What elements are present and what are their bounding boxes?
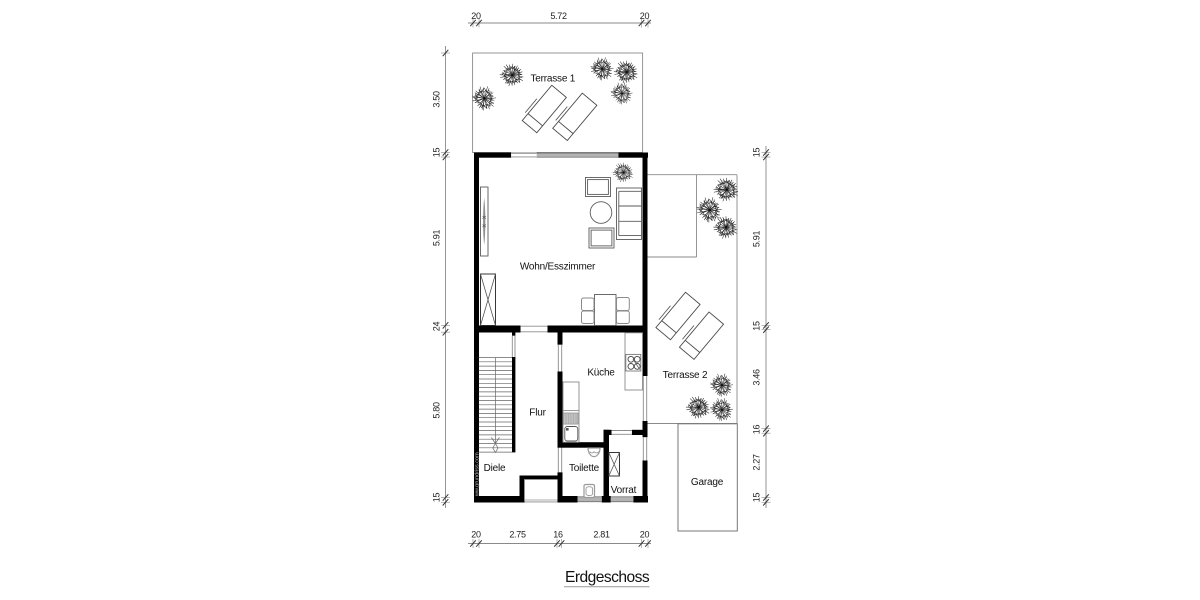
svg-text:15: 15 — [752, 493, 762, 503]
svg-text:5.91: 5.91 — [432, 230, 442, 247]
svg-text:2.81: 2.81 — [593, 530, 610, 540]
svg-text:15: 15 — [432, 493, 442, 503]
svg-text:5.91: 5.91 — [752, 231, 762, 248]
svg-text:Vorrat: Vorrat — [611, 485, 637, 496]
svg-text:2.27: 2.27 — [752, 454, 762, 471]
svg-text:16: 16 — [752, 425, 762, 435]
svg-text:20: 20 — [640, 530, 650, 540]
svg-text:2.75: 2.75 — [509, 530, 526, 540]
svg-text:Erdgeschoss: Erdgeschoss — [565, 569, 650, 586]
svg-text:15: 15 — [752, 148, 762, 158]
svg-text:24: 24 — [432, 322, 442, 332]
svg-text:Wohn/Esszimmer: Wohn/Esszimmer — [520, 262, 596, 273]
svg-text:20: 20 — [471, 530, 481, 540]
svg-text:15: 15 — [752, 321, 762, 331]
svg-text:3.50: 3.50 — [432, 91, 442, 108]
svg-text:5.72: 5.72 — [550, 11, 567, 21]
svg-text:Terrasse 2: Terrasse 2 — [663, 370, 708, 381]
svg-text:Küche: Küche — [587, 368, 615, 379]
svg-text:15: 15 — [432, 148, 442, 158]
svg-text:20: 20 — [640, 11, 650, 21]
svg-text:20: 20 — [471, 11, 481, 21]
svg-text:www.grundriss.com: www.grundriss.com — [474, 452, 480, 501]
svg-text:Diele: Diele — [484, 463, 506, 474]
svg-text:Toilette: Toilette — [569, 463, 600, 474]
svg-text:16: 16 — [553, 530, 563, 540]
svg-text:Flur: Flur — [529, 408, 546, 419]
svg-text:Terrasse 1: Terrasse 1 — [530, 74, 575, 85]
svg-text:3.46: 3.46 — [752, 369, 762, 386]
svg-text:Garage: Garage — [691, 477, 724, 488]
svg-text:5.80: 5.80 — [432, 402, 442, 419]
